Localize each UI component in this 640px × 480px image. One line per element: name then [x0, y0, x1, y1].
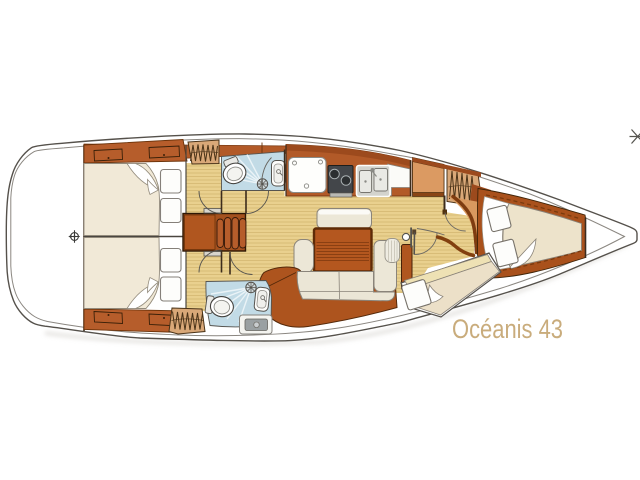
svg-text:Océanis 43: Océanis 43	[452, 314, 563, 344]
